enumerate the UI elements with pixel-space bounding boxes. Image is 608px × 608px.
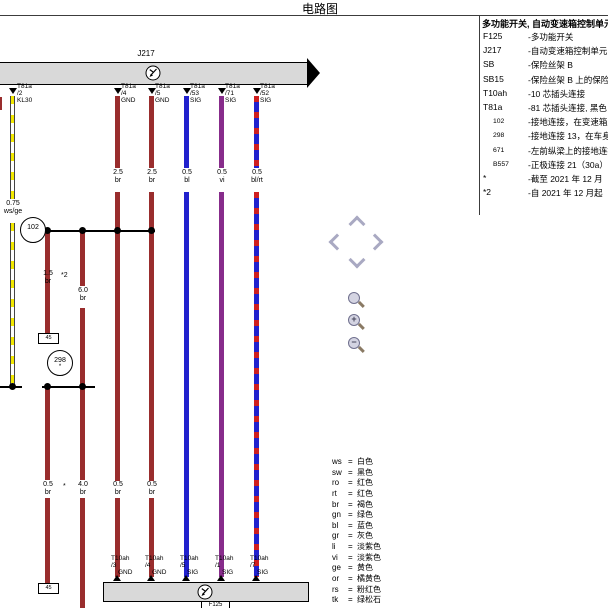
junction-dot (79, 383, 86, 390)
pin-label: T10ah/1SIG (215, 556, 233, 577)
color-legend-row: li=淡紫色 (332, 541, 381, 552)
minus-glyph: − (351, 337, 356, 347)
legend-row: F125-多功能开关 (482, 30, 608, 44)
wire-segment (254, 192, 259, 577)
wire-segment (10, 96, 15, 199)
pan-up-icon[interactable] (349, 216, 366, 233)
pin-label: T10ah/7SIG (250, 556, 268, 577)
wire-gauge-label: 0.5br (139, 481, 165, 496)
wire-segment (45, 388, 50, 480)
zoom-reset-icon[interactable] (348, 292, 360, 304)
legend-row: SB-保险丝架 B (482, 58, 608, 72)
junction-dot (79, 227, 86, 234)
wire-segment (149, 192, 154, 481)
legend-divider (479, 15, 480, 215)
legend-row: 102-接地连接，在变速箱上 (482, 115, 608, 129)
junction-dot (114, 227, 121, 234)
ground-node-298: 298 * (47, 350, 73, 376)
wire-segment (184, 96, 189, 168)
continuation-ref-box: 45 (38, 333, 59, 344)
pin-label: T81a/71SIG (225, 84, 240, 105)
color-legend-row: vi=淡紫色 (332, 552, 381, 563)
wire-segment (80, 308, 85, 480)
continuation-symbol-icon (197, 584, 213, 600)
color-legend-row: ro=红色 (332, 477, 381, 488)
color-legend-row: rs=粉红色 (332, 584, 381, 595)
color-legend-row: tk=绿松石 (332, 594, 381, 605)
zoom-out-icon[interactable]: − (348, 337, 360, 349)
wire-gauge-label: 0.5bl/rt (244, 169, 270, 184)
component-legend: 多功能开关, 自动变速箱控制单元 F125-多功能开关J217-自动变速箱控制单… (482, 17, 608, 200)
component-box-j217 (0, 62, 308, 85)
wire-note: *2 (61, 272, 68, 279)
wire-gauge-label: 1.5br (35, 270, 61, 285)
wire-gauge-label: 0.5br (35, 481, 61, 496)
pin-label: T81a/4GND (121, 84, 136, 105)
legend-row: T10ah-10 芯插头连接 (482, 87, 608, 101)
junction-line (44, 230, 155, 232)
wire-segment (219, 192, 224, 577)
wire-segment (45, 498, 50, 583)
wire-gauge-label: 4.0br (70, 481, 96, 496)
continuation-ref-box: 45 (38, 583, 59, 594)
pin-label: T81a/2KL30 (17, 84, 32, 105)
wire-note: * (63, 483, 66, 490)
legend-row: T81a-81 芯插头连接, 黑色 (482, 101, 608, 115)
junction-dot (9, 383, 16, 390)
color-legend-row: gn=绿色 (332, 509, 381, 520)
ground-node-102: 102 (20, 217, 46, 243)
pan-down-icon[interactable] (349, 252, 366, 269)
component-box-f125 (103, 582, 309, 602)
ground-node-note: * (48, 364, 72, 370)
legend-row: J217-自动变速箱控制单元 (482, 44, 608, 58)
color-legend-row: gr=灰色 (332, 530, 381, 541)
color-legend-row: ws=白色 (332, 456, 381, 467)
pin-label: T81a/53SIG (190, 84, 205, 105)
wire-gauge-label: 2.5br (139, 169, 165, 184)
pin-label: T10ah/4GND (145, 556, 166, 577)
color-legend-row: rt=红色 (332, 488, 381, 499)
component-legend-rows: F125-多功能开关J217-自动变速箱控制单元SB-保险丝架 BSB15-保险… (482, 30, 608, 200)
wire-gauge-label: 0.75ws/ge (0, 200, 26, 215)
ground-node-label: 102 (27, 224, 39, 231)
wire-gauge-label: 2.5br (105, 169, 131, 184)
legend-row: *2-自 2021 年 12 月起 (482, 186, 608, 200)
wire-gauge-label: 6.0br (70, 287, 96, 302)
pin-label: T81a/5GND (155, 84, 170, 105)
wire-segment (219, 96, 224, 168)
color-legend-row: or=橘黄色 (332, 573, 381, 584)
continuation-symbol-icon (145, 65, 161, 81)
pan-left-icon[interactable] (329, 234, 346, 251)
legend-row: B557-正极连接 21（30a） (482, 158, 608, 172)
wire-gauge-label: 0.5vi (209, 169, 235, 184)
ground-node-label: 298 (54, 357, 66, 364)
connector-hook-icon (9, 88, 17, 94)
wiring-diagram-viewer: 电路图 J217 F125 (0, 0, 608, 608)
color-legend-row: ge=黄色 (332, 562, 381, 573)
wire-segment (80, 231, 85, 286)
wire-segment (115, 96, 120, 168)
component-label-f125: F125 (201, 601, 230, 608)
color-legend-row: bl=蓝色 (332, 520, 381, 531)
component-label-j217: J217 (126, 49, 166, 58)
wire-segment (254, 96, 259, 168)
continuation-arrow-icon (307, 58, 320, 88)
legend-row: 298-接地连接 13，在车身 (482, 129, 608, 143)
legend-row: 671-左前纵梁上的接地连接 (482, 144, 608, 158)
wire-segment (184, 192, 189, 577)
wire-segment (10, 223, 15, 388)
wire-gauge-label: 0.5br (105, 481, 131, 496)
header-divider (0, 15, 608, 16)
color-legend-row: sw=黑色 (332, 467, 381, 478)
zoom-in-icon[interactable]: + (348, 314, 360, 326)
legend-row: SB15-保险丝架 B 上的保险丝 (482, 73, 608, 87)
pin-label: T81a/52SIG (260, 84, 275, 105)
wire-gauge-label: 0.5bl (174, 169, 200, 184)
color-legend: ws=白色sw=黑色ro=红色rt=红色br=褐色gn=绿色bl=蓝色gr=灰色… (332, 456, 381, 605)
wire-segment (0, 97, 2, 110)
legend-row: *-截至 2021 年 12 月 (482, 172, 608, 186)
pin-label: T10ah/5SIG (180, 556, 198, 577)
pan-right-icon[interactable] (367, 234, 384, 251)
junction-dot (44, 383, 51, 390)
junction-dot (148, 227, 155, 234)
legend-header: 多功能开关, 自动变速箱控制单元 (482, 17, 608, 30)
plus-glyph: + (351, 314, 356, 324)
pin-label: T10ah/3GND (111, 556, 132, 577)
wire-segment (149, 96, 154, 168)
wire-segment (115, 192, 120, 481)
wire-segment (80, 498, 85, 608)
color-legend-row: br=褐色 (332, 499, 381, 510)
